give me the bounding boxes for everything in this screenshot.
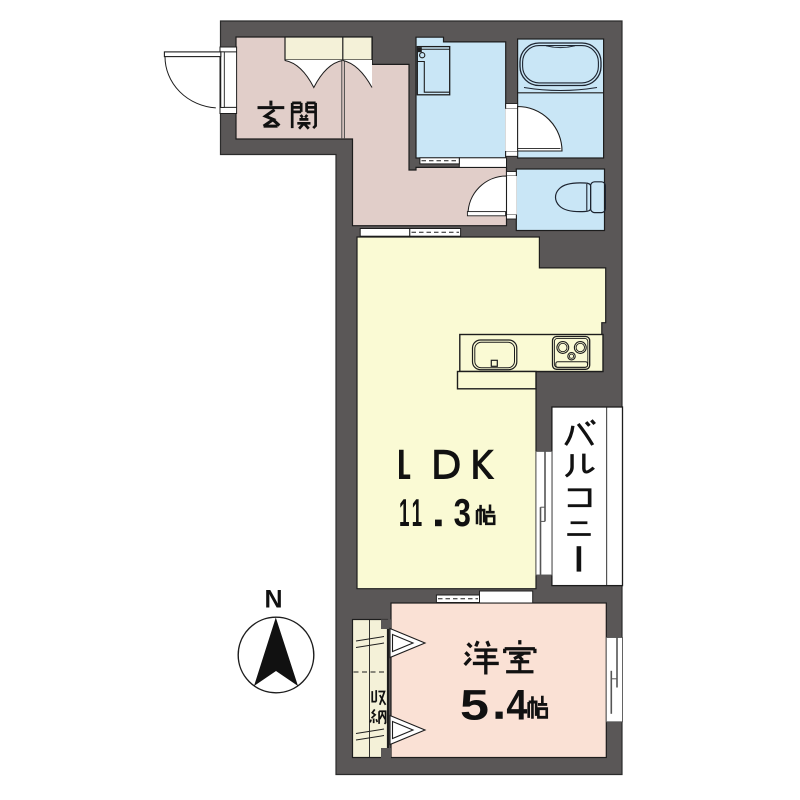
svg-text:4: 4 <box>506 682 527 730</box>
svg-text:1: 1 <box>399 492 410 535</box>
svg-text:1: 1 <box>412 492 423 535</box>
svg-text:3: 3 <box>454 492 471 535</box>
svg-text:N: N <box>264 586 282 614</box>
svg-text:5: 5 <box>460 682 489 730</box>
